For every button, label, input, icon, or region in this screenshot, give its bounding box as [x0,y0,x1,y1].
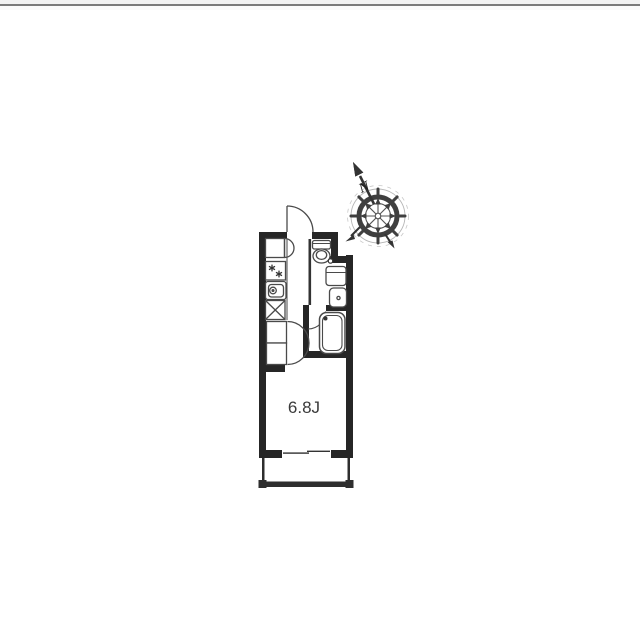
washroom-fixtures [326,267,347,308]
balcony [259,458,354,488]
compass-icon: N [346,162,409,249]
wall-upper-right [331,232,338,258]
kitchen-fixtures [266,239,295,321]
balcony-wall-bottom [259,482,353,488]
wall-bottom-left [259,450,282,458]
page: 6.8J [0,0,640,630]
sliding-window-icon [283,451,330,454]
washing-machine-icon [330,288,347,307]
wall-room-stub [259,364,285,372]
closet-icon [267,322,310,365]
gas-stove-icon [266,262,286,281]
entrance-door-swing [287,206,313,232]
wall-bottom-right [331,450,353,458]
floorplan-canvas: 6.8J [0,0,640,630]
wall-corridor-partition [309,239,312,305]
toilet-icon [313,241,331,264]
entrance-door-icon [287,206,313,232]
room-size-label: 6.8J [288,398,320,417]
kitchen-sink-icon [266,282,287,300]
balcony-cap-left [259,480,267,488]
door-knob-icon [328,259,332,263]
bathroom [308,312,345,354]
washer-space-icon [266,301,286,320]
shoe-cabinet-icon [266,239,295,258]
washbasin-icon [326,267,346,286]
balcony-cap-right [346,480,354,488]
bathtub-icon [320,313,346,354]
